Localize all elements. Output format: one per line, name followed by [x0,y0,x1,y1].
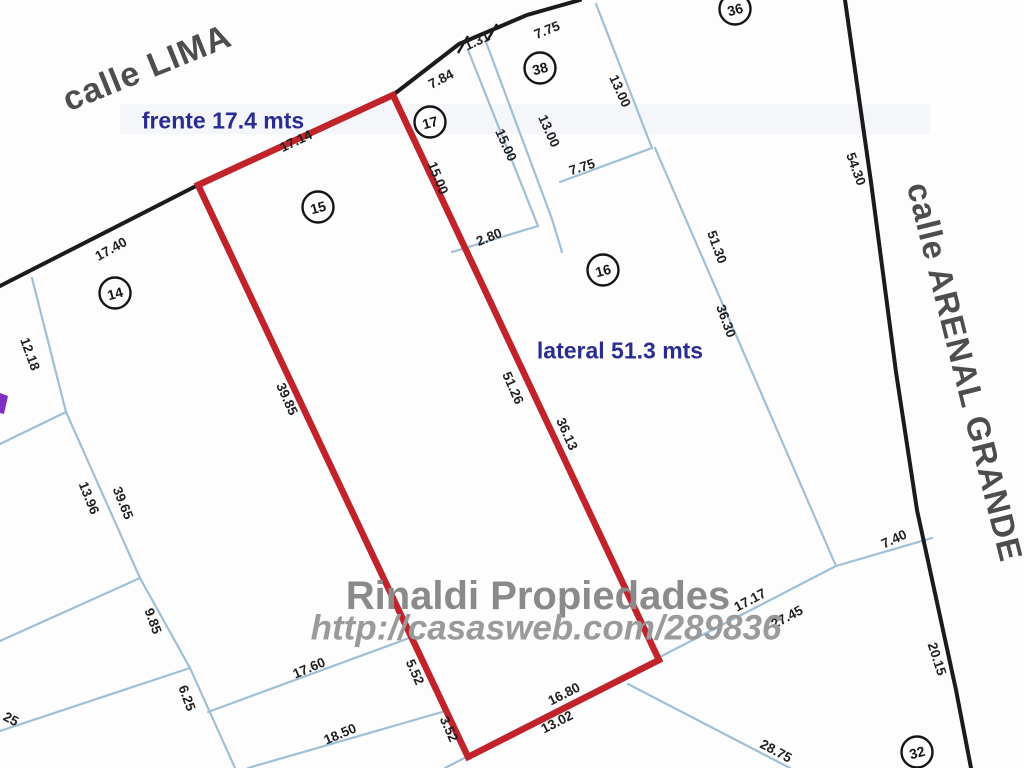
measurement-label-25-22: 25 [1,709,22,730]
measurement-label-17.40-0: 17.40 [93,234,130,264]
measurement-label-54.30-13: 54.30 [843,151,869,188]
measurement-label-7.40-31: 7.40 [879,527,909,552]
parcel-line-3 [0,668,190,731]
annotation-frente: frente 17.4 mts [142,110,304,133]
purple-edge-mark [0,393,8,414]
parcel-line-2 [0,578,140,641]
measurement-label-51.30-11: 51.30 [704,229,730,266]
highlighted-lot-outline [198,95,659,757]
measurement-label-18.50-24: 18.50 [322,720,359,747]
annotation-lateral: lateral 51.3 mts [537,340,703,363]
measurement-label-2.80-10: 2.80 [474,225,504,249]
measurement-label-3.52-26: 3.52 [437,714,461,744]
watermark-url: http://casasweb.com/289836 [311,611,782,646]
parcel-line-1 [0,412,66,444]
measurement-label-9.85-20: 9.85 [141,606,164,636]
parcel-line-0 [32,278,235,768]
measurement-label-7.84-2: 7.84 [426,66,457,92]
measurement-label-39.65-16: 39.65 [110,485,137,522]
measurement-label-7.75-4: 7.75 [532,18,562,42]
measurement-label-36.30-12: 36.30 [713,303,739,340]
measurement-label-17.60-23: 17.60 [291,654,328,681]
measurement-label-12.18-14: 12.18 [17,336,43,373]
parcel-line-12 [552,219,562,252]
measurement-label-6.25-21: 6.25 [175,683,198,713]
parcel-line-8 [628,684,790,768]
boundary-lima-edge [0,185,198,286]
boundary-lima-edge-upper [393,0,580,95]
cadastral-plan-canvas: 17.4017.147.841.317.7515.0013.0013.0015.… [0,0,1024,768]
